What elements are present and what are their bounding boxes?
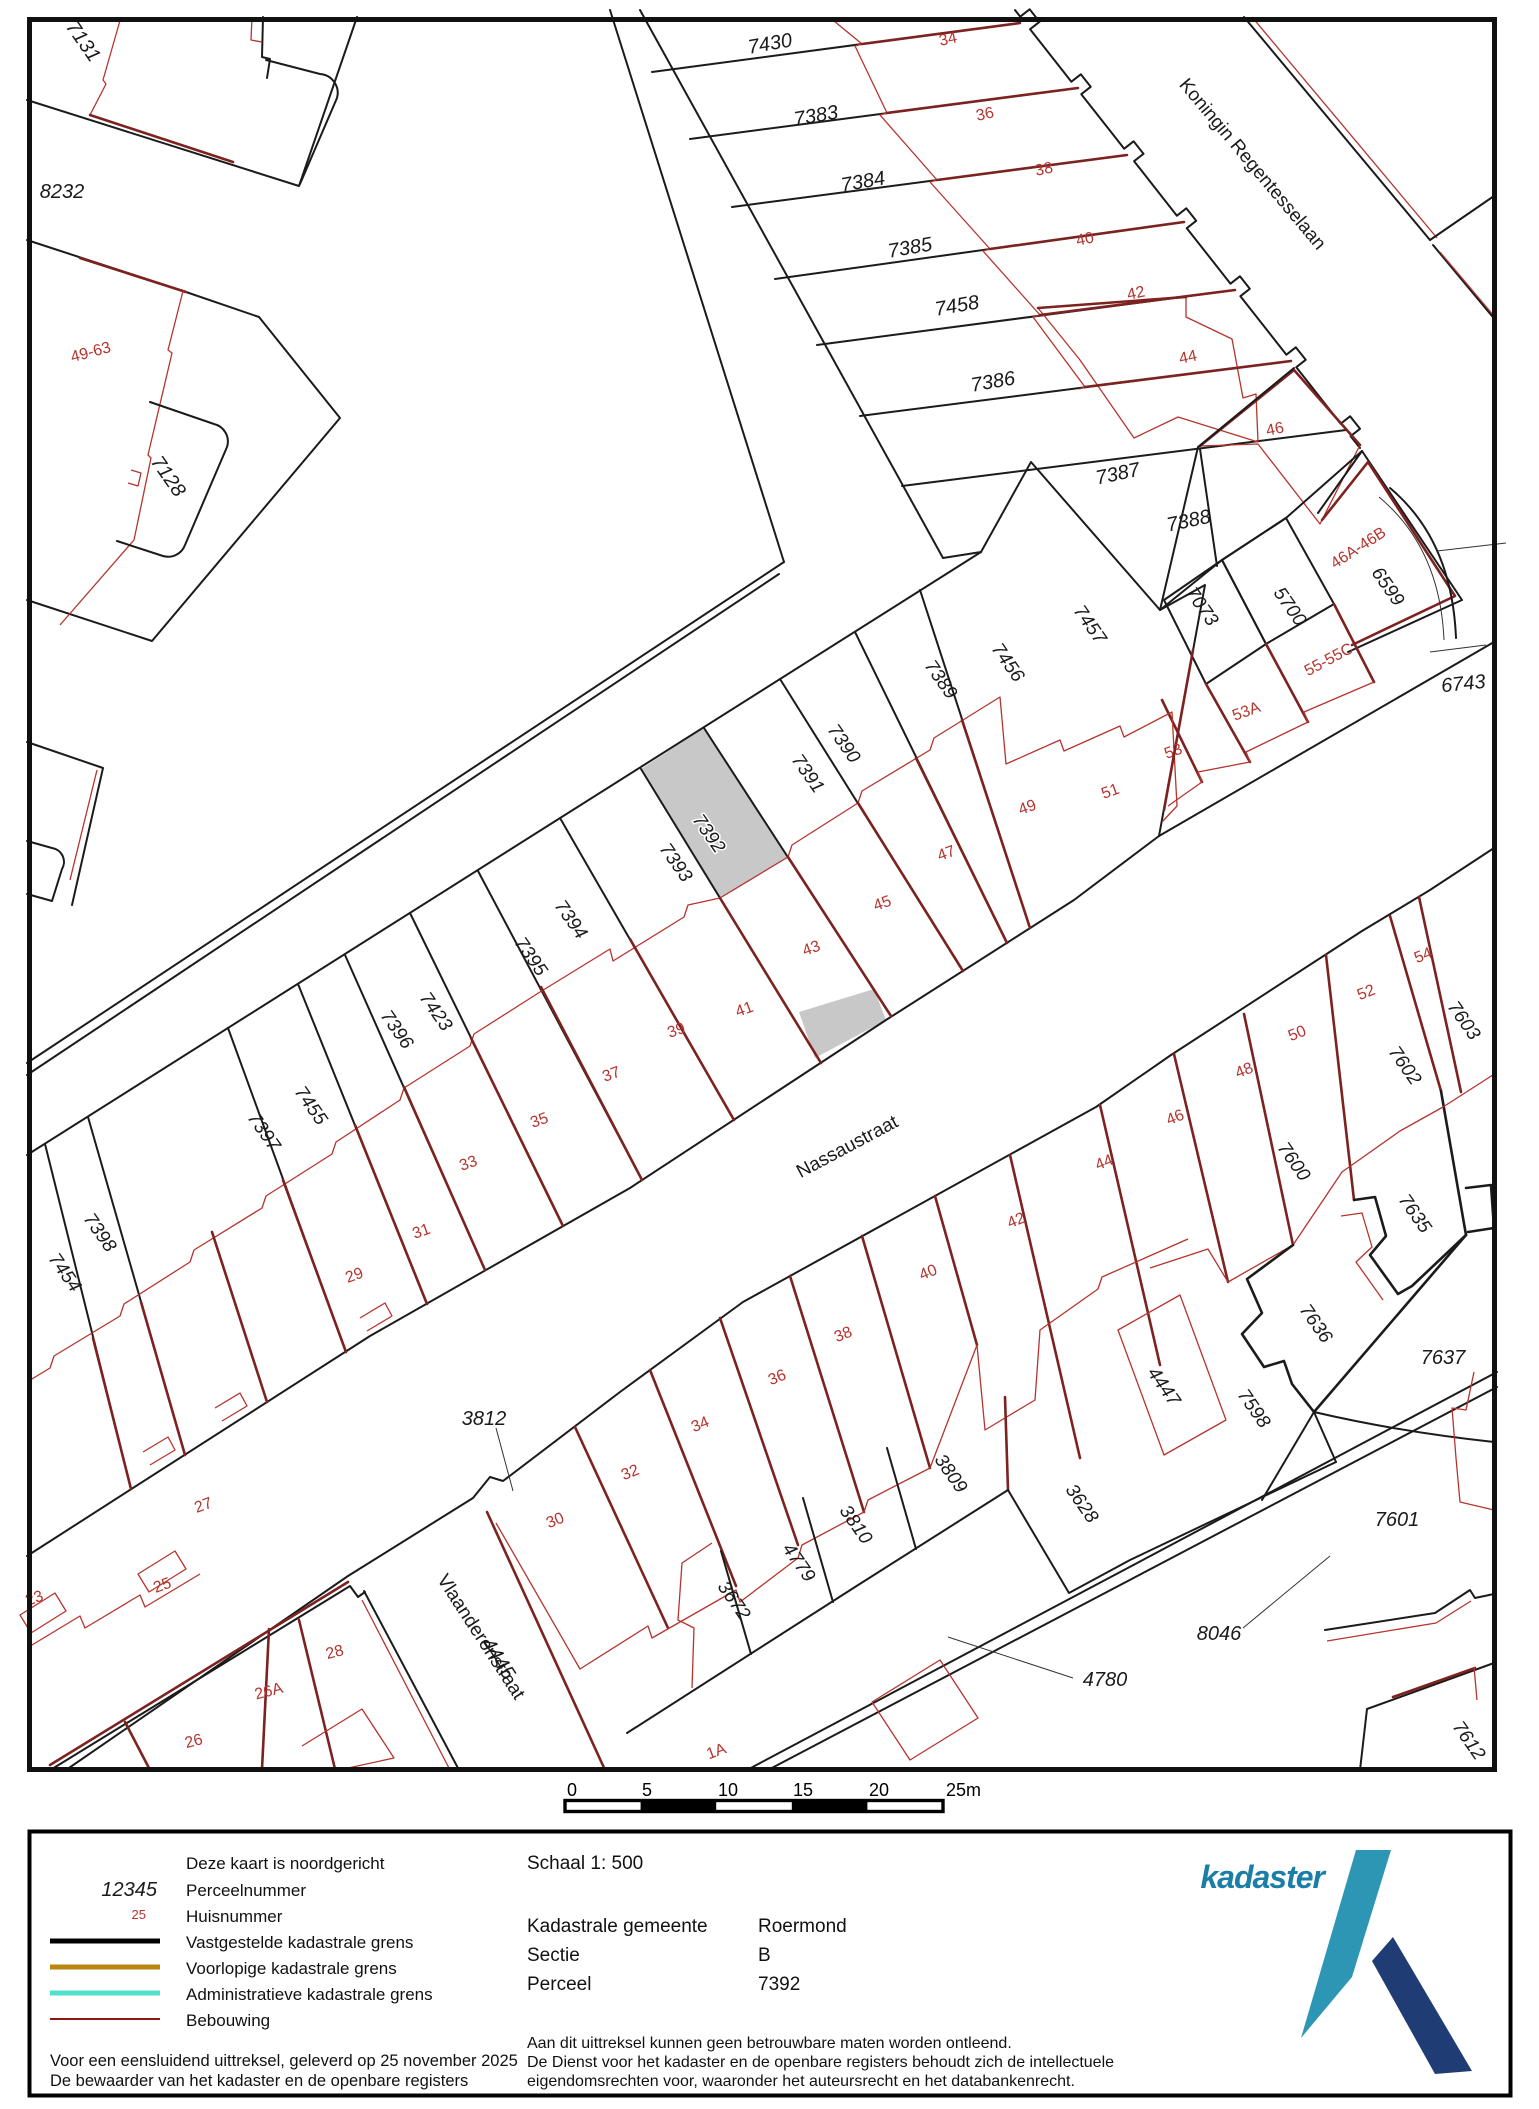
svg-text:Perceel: Perceel	[527, 1974, 591, 1995]
svg-text:10: 10	[718, 1780, 738, 1800]
svg-text:B: B	[758, 1945, 771, 1966]
svg-text:kadaster: kadaster	[1200, 1859, 1326, 1895]
svg-text:Aan dit uittreksel kunnen geen: Aan dit uittreksel kunnen geen betrouwba…	[527, 2035, 1012, 2052]
svg-text:5: 5	[642, 1780, 652, 1800]
svg-text:8046: 8046	[1197, 1623, 1242, 1645]
svg-text:De bewaarder van het kadaster: De bewaarder van het kadaster en de open…	[50, 2072, 468, 2090]
svg-text:Vastgestelde kadastrale grens: Vastgestelde kadastrale grens	[186, 1933, 413, 1952]
svg-text:Kadastrale gemeente: Kadastrale gemeente	[527, 1916, 708, 1937]
svg-text:46: 46	[1265, 419, 1286, 439]
svg-text:38: 38	[1034, 159, 1055, 179]
svg-text:eigendomsrechten voor, waarond: eigendomsrechten voor, waaronder het aut…	[527, 2073, 1075, 2090]
svg-text:8232: 8232	[40, 181, 85, 203]
svg-text:25: 25	[132, 1907, 146, 1922]
svg-text:12345: 12345	[101, 1879, 157, 1901]
svg-text:0: 0	[567, 1780, 577, 1800]
svg-text:Huisnummer: Huisnummer	[186, 1907, 283, 1926]
svg-text:20: 20	[869, 1780, 889, 1800]
svg-text:Administratieve kadastrale gre: Administratieve kadastrale grens	[186, 1985, 433, 2004]
svg-text:34: 34	[938, 29, 959, 49]
svg-text:Schaal 1: 500: Schaal 1: 500	[527, 1853, 643, 1874]
svg-text:42: 42	[1126, 283, 1147, 303]
svg-text:40: 40	[1075, 229, 1096, 249]
svg-text:7392: 7392	[758, 1974, 800, 1995]
svg-text:25m: 25m	[946, 1780, 981, 1800]
svg-text:36: 36	[975, 104, 996, 124]
svg-text:Perceelnummer: Perceelnummer	[186, 1881, 306, 1900]
svg-text:6743: 6743	[1440, 671, 1487, 698]
svg-text:Bebouwing: Bebouwing	[186, 2011, 270, 2030]
svg-text:3812: 3812	[462, 1408, 507, 1430]
svg-text:Deze kaart is noordgericht: Deze kaart is noordgericht	[186, 1854, 385, 1873]
svg-text:44: 44	[1178, 347, 1199, 367]
svg-text:15: 15	[793, 1780, 813, 1800]
svg-text:Voorlopige kadastrale grens: Voorlopige kadastrale grens	[186, 1959, 397, 1978]
svg-text:7637: 7637	[1421, 1347, 1466, 1369]
svg-text:Roermond: Roermond	[758, 1916, 847, 1937]
svg-text:Voor een eensluidend uittrekse: Voor een eensluidend uittreksel, gelever…	[50, 2052, 518, 2070]
svg-text:Sectie: Sectie	[527, 1945, 580, 1966]
svg-text:7601: 7601	[1375, 1509, 1420, 1531]
svg-text:4780: 4780	[1083, 1669, 1128, 1691]
svg-text:De Dienst voor het kadaster en: De Dienst voor het kadaster en de openba…	[527, 2054, 1114, 2071]
